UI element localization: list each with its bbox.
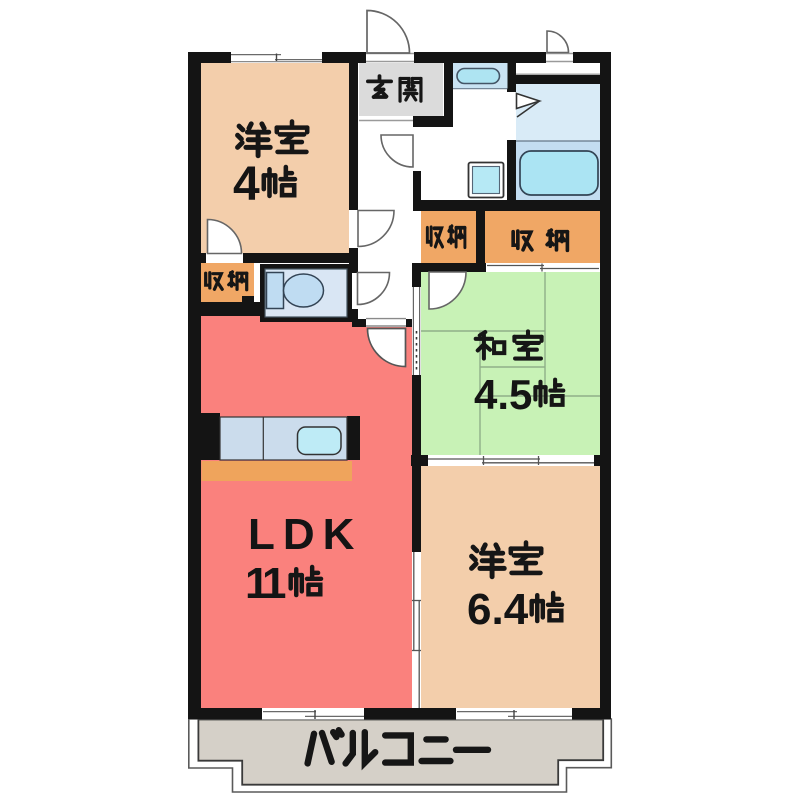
svg-text:4: 4 — [233, 158, 260, 211]
svg-text:6.4: 6.4 — [467, 585, 529, 634]
svg-text:11: 11 — [245, 559, 286, 608]
svg-text:LDK: LDK — [248, 510, 362, 559]
svg-text:4.5: 4.5 — [474, 371, 532, 418]
